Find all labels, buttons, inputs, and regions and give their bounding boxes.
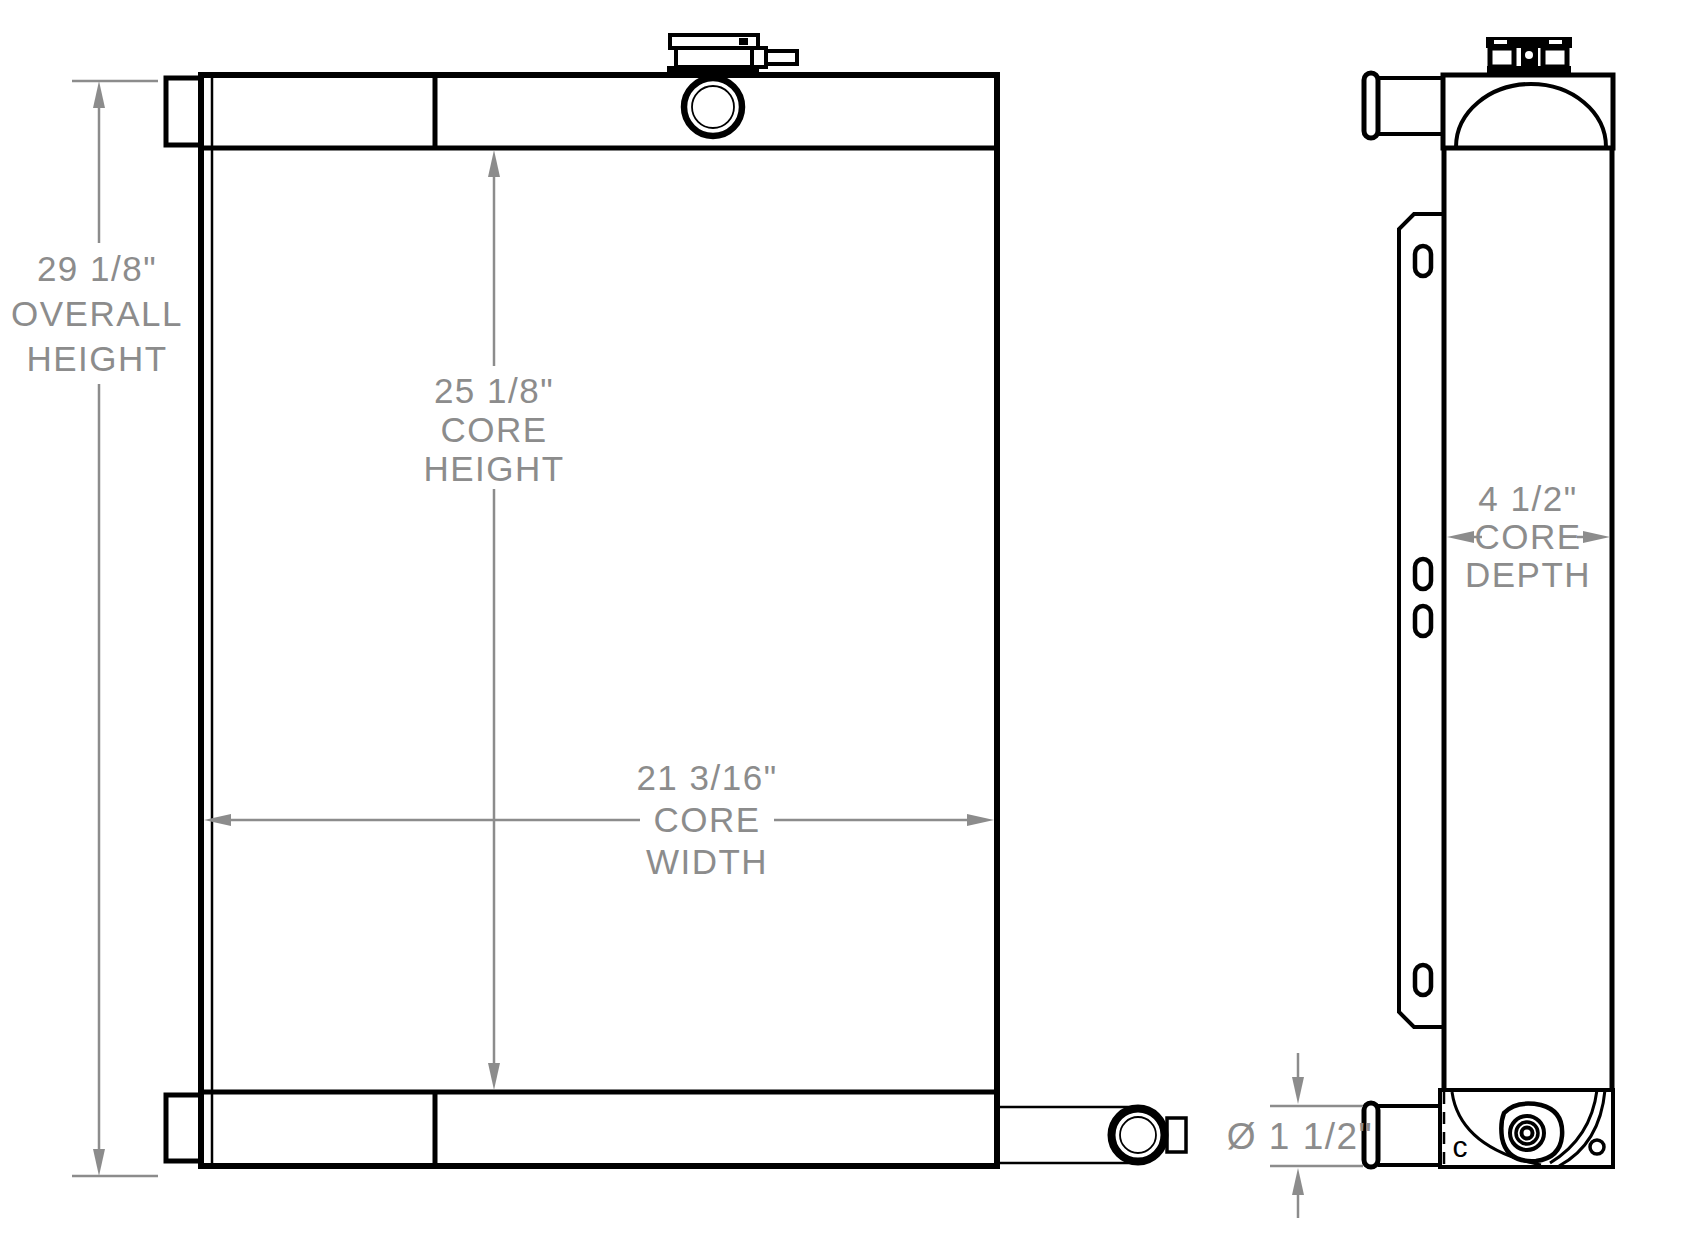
outlet-pipe-bore [1120,1117,1156,1153]
arrowhead-up [1292,1168,1304,1195]
side-view [1364,37,1613,1167]
core-width-word-1: CORE [577,799,837,841]
core-height-word-2: HEIGHT [364,449,624,488]
core-depth-word-2: DEPTH [1398,556,1658,594]
overall-height-label: 29 1/8" OVERALL HEIGHT [0,246,194,381]
outlet-diameter-value: Ø 1 1/2" [1170,1115,1430,1159]
core-height-dimension [488,150,500,1090]
drain-boss-mid-ring [1516,1122,1538,1144]
side-cap-pin [1525,51,1533,59]
arrowhead-left [204,814,231,826]
overall-height-value: 29 1/8" [0,246,194,291]
front-view [166,35,1186,1166]
core-depth-word-1: CORE [1398,518,1658,556]
side-inlet-pipe [1364,73,1444,138]
arrowhead-down [1292,1077,1304,1104]
core-width-value: 21 3/16" [577,757,837,799]
overall-height-word-1: OVERALL [0,291,194,336]
bottom-left-pipe-stub [166,1095,201,1161]
tank-rivet-hole [1590,1140,1604,1154]
cap-base-flange [667,66,759,75]
arrowhead-down [488,1063,500,1090]
overflow-tube [766,51,797,64]
overall-height-word-2: HEIGHT [0,336,194,381]
top-left-pipe-stub [166,78,201,145]
outlet-diameter-label: Ø 1 1/2" [1170,1115,1430,1159]
drawing-linework [0,0,1706,1251]
core-height-word-1: CORE [364,410,624,449]
bracket-outline [1399,214,1444,1027]
side-cap-right-ear [1543,48,1567,67]
cap-body [676,48,752,67]
radiator-cap-front [667,35,797,75]
side-cap-left-ear [1490,48,1514,67]
core-width-word-2: WIDTH [577,841,837,883]
radiator-technical-drawing: 29 1/8" OVERALL HEIGHT 25 1/8" CORE HEIG… [0,0,1706,1251]
arrowhead-up [93,81,105,108]
side-cap-base [1487,66,1571,74]
dimension-lines [72,81,1610,1218]
arrowhead-right [967,814,994,826]
side-tank-dome-profile [1456,84,1606,147]
cap-notch [739,38,748,45]
bracket-slot [1415,606,1431,636]
side-cap-slit [1549,40,1562,44]
core-depth-label: 4 1/2" CORE DEPTH [1398,480,1658,594]
arrowhead-down [93,1149,105,1176]
radiator-cap-side [1486,37,1572,74]
front-body-outline [201,75,997,1166]
core-depth-value: 4 1/2" [1398,480,1658,518]
bracket-slot [1415,965,1431,995]
tank-letter-annotation: c [1448,1131,1472,1163]
overflow-neck [752,48,766,67]
bracket-slot [1415,246,1431,276]
drain-boss-bore [1522,1128,1533,1139]
core-width-label: 21 3/16" CORE WIDTH [577,757,837,883]
core-height-value: 25 1/8" [364,371,624,410]
outlet-assembly-front [997,1107,1186,1163]
filler-neck-inner-ring [692,86,734,128]
mounting-bracket [1399,214,1444,1027]
inlet-pipe-bead [1364,73,1378,138]
side-cap-slit [1494,40,1507,44]
arrowhead-up [488,150,500,177]
core-height-label: 25 1/8" CORE HEIGHT [364,371,624,488]
